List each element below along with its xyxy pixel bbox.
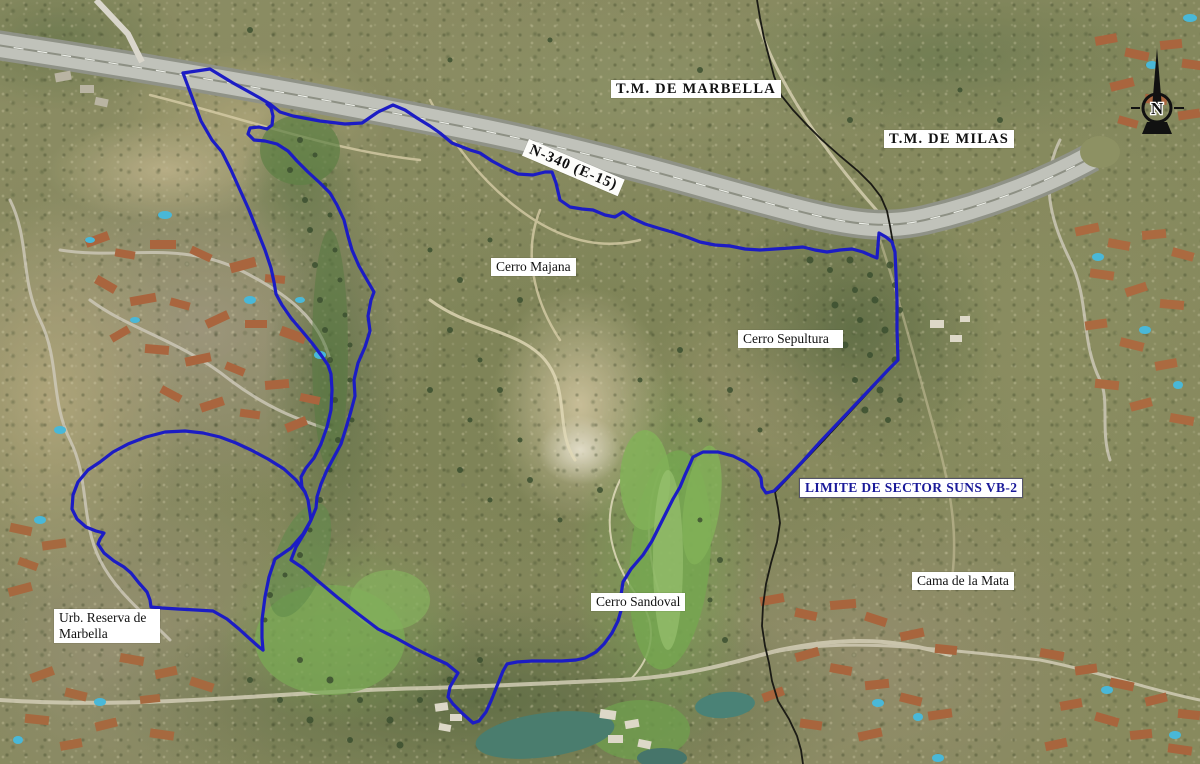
urbanization-right-mid xyxy=(1074,223,1194,426)
urbanization-left xyxy=(84,231,320,433)
label-cerro-sepultura: Cerro Sepultura xyxy=(738,330,843,348)
label-urb-reserva: Urb. Reserva de Marbella xyxy=(54,609,160,643)
label-urb-reserva-line1: Urb. Reserva de xyxy=(59,610,146,625)
label-tm-milas: T.M. DE MILAS xyxy=(884,130,1014,148)
north-arrow: N xyxy=(1131,48,1184,134)
highway-n340 xyxy=(0,0,1120,225)
sector-boundary-line xyxy=(72,69,898,723)
label-urb-reserva-line2: Marbella xyxy=(59,626,108,641)
label-sector-boundary: LIMITE DE SECTOR SUNS VB-2 xyxy=(799,478,1023,498)
label-cerro-sandoval: Cerro Sandoval xyxy=(591,593,685,611)
label-cerro-majana: Cerro Majana xyxy=(491,258,576,276)
label-tm-marbella: T.M. DE MARBELLA xyxy=(611,80,781,98)
urbanization-top-right xyxy=(1094,33,1200,128)
map-feature-overlay: N xyxy=(0,0,1200,764)
north-letter: N xyxy=(1151,99,1164,118)
golf-course-greens xyxy=(255,115,728,760)
urbanization-bottom-right xyxy=(759,593,1200,756)
aerial-map: N T.M. DE MARBELLA T.M. DE MILAS N-340 (… xyxy=(0,0,1200,764)
label-cama-de-la-mata: Cama de la Mata xyxy=(912,572,1014,590)
swimming-pools xyxy=(13,14,1197,762)
